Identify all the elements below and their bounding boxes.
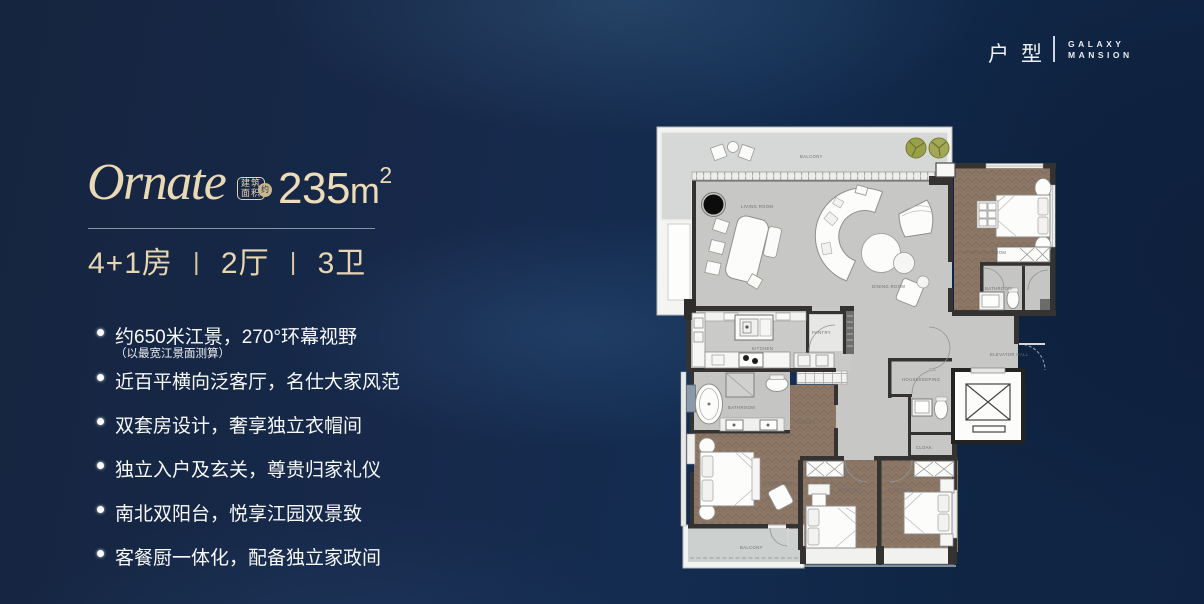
svg-text:2F MASTER ROOM: 2F MASTER ROOM <box>963 250 1006 255</box>
svg-text:ELEVATOR HALL: ELEVATOR HALL <box>990 352 1029 357</box>
svg-text:KITCHEN: KITCHEN <box>752 346 773 351</box>
svg-text:CLOSET: CLOSET <box>796 420 815 425</box>
svg-text:BEDROOM: BEDROOM <box>838 487 863 492</box>
svg-text:PANTRY: PANTRY <box>812 330 831 335</box>
svg-text:HOUSEKEEPING: HOUSEKEEPING <box>902 377 940 382</box>
svg-text:CLOAK: CLOAK <box>916 445 932 450</box>
svg-text:LIVING ROOM: LIVING ROOM <box>741 204 773 209</box>
svg-text:BALCONY: BALCONY <box>740 545 763 550</box>
svg-text:BATHROOM: BATHROOM <box>985 286 1012 291</box>
svg-text:BATHROOM: BATHROOM <box>728 405 755 410</box>
svg-text:DINING ROOM: DINING ROOM <box>872 284 905 289</box>
svg-text:M BEDROOM: M BEDROOM <box>763 480 793 485</box>
svg-text:BALCONY: BALCONY <box>800 154 823 159</box>
svg-text:BEDROOM: BEDROOM <box>888 487 913 492</box>
